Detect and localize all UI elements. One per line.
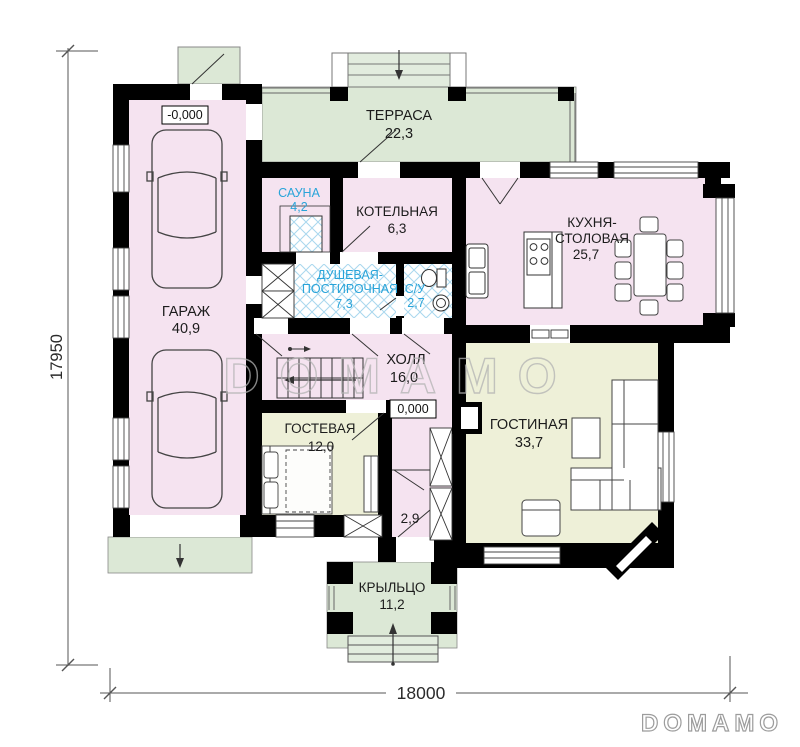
fireplace-icon bbox=[452, 402, 482, 434]
sauna-label: САУНА bbox=[278, 186, 321, 200]
terrace-label: ТЕРРАСА bbox=[366, 108, 432, 124]
wc-area: 2,7 bbox=[407, 296, 424, 310]
porch-area: 11,2 bbox=[379, 597, 404, 612]
shower-cabin-icon bbox=[262, 264, 294, 318]
elevation-hall-value: 0,000 bbox=[397, 402, 428, 416]
boiler-label: КОТЕЛЬНАЯ bbox=[356, 204, 438, 219]
kitchen-label-line1: КУХНЯ- bbox=[567, 215, 617, 230]
window bbox=[113, 248, 129, 290]
living-area: 33,7 bbox=[515, 435, 543, 451]
guest-label: ГОСТЕВАЯ bbox=[285, 421, 356, 436]
watermark: DOMAMO bbox=[223, 348, 576, 404]
floor-plan-page: -0,000 0,000 ТЕРРАСА 22,3 САУНА 4,2 КОТЕ… bbox=[0, 0, 800, 747]
sauna-stove-icon bbox=[290, 216, 322, 252]
brand-logo: DOMAMO bbox=[641, 710, 783, 737]
sauna-area: 4,2 bbox=[290, 200, 307, 214]
dimension-left-value: 17950 bbox=[48, 334, 66, 380]
guest-area: 12,0 bbox=[308, 439, 334, 454]
coffee-table-icon bbox=[572, 418, 600, 458]
kitchen-label-line2: СТОЛОВАЯ bbox=[555, 231, 629, 246]
terrace-steps-icon bbox=[332, 50, 466, 87]
shower-label-line1: ДУШЕВАЯ- bbox=[317, 268, 383, 282]
terrace-area: 22,3 bbox=[385, 126, 413, 142]
kitchen-sink-unit-icon bbox=[466, 244, 488, 298]
window bbox=[276, 515, 314, 537]
elevation-garage-value: -0,000 bbox=[167, 108, 202, 122]
kitchen-area: 25,7 bbox=[573, 247, 599, 262]
window bbox=[550, 162, 598, 178]
elevation-garage: -0,000 bbox=[162, 106, 208, 124]
terrace-floor bbox=[262, 87, 576, 162]
window bbox=[113, 466, 129, 508]
kitchen-bay-floor bbox=[705, 198, 716, 313]
shower-label-line2: ПОСТИРОЧНАЯ bbox=[302, 282, 398, 296]
armchair-icon bbox=[522, 500, 560, 536]
garage-label: ГАРАЖ bbox=[162, 304, 211, 320]
garage-area: 40,9 bbox=[172, 321, 200, 337]
garage-apron bbox=[108, 537, 252, 573]
sink-icon bbox=[433, 295, 449, 311]
window bbox=[113, 296, 129, 338]
window bbox=[113, 418, 129, 460]
vestibule-area: 2,9 bbox=[401, 511, 420, 526]
window bbox=[716, 198, 734, 313]
dimension-bottom-value: 18000 bbox=[397, 683, 446, 703]
window bbox=[113, 145, 129, 192]
living-label: ГОСТИНАЯ bbox=[490, 417, 568, 433]
wc-label: С/У bbox=[405, 282, 426, 296]
floor-plan: -0,000 0,000 ТЕРРАСА 22,3 САУНА 4,2 КОТЕ… bbox=[0, 0, 800, 747]
window bbox=[484, 547, 560, 564]
shower-area: 7,3 bbox=[335, 297, 352, 311]
window bbox=[614, 162, 698, 178]
garage-side-entry-pad bbox=[178, 47, 240, 84]
bed-icon bbox=[262, 446, 332, 514]
boiler-area: 6,3 bbox=[388, 221, 407, 236]
porch-label: КРЫЛЬЦО bbox=[359, 580, 426, 595]
